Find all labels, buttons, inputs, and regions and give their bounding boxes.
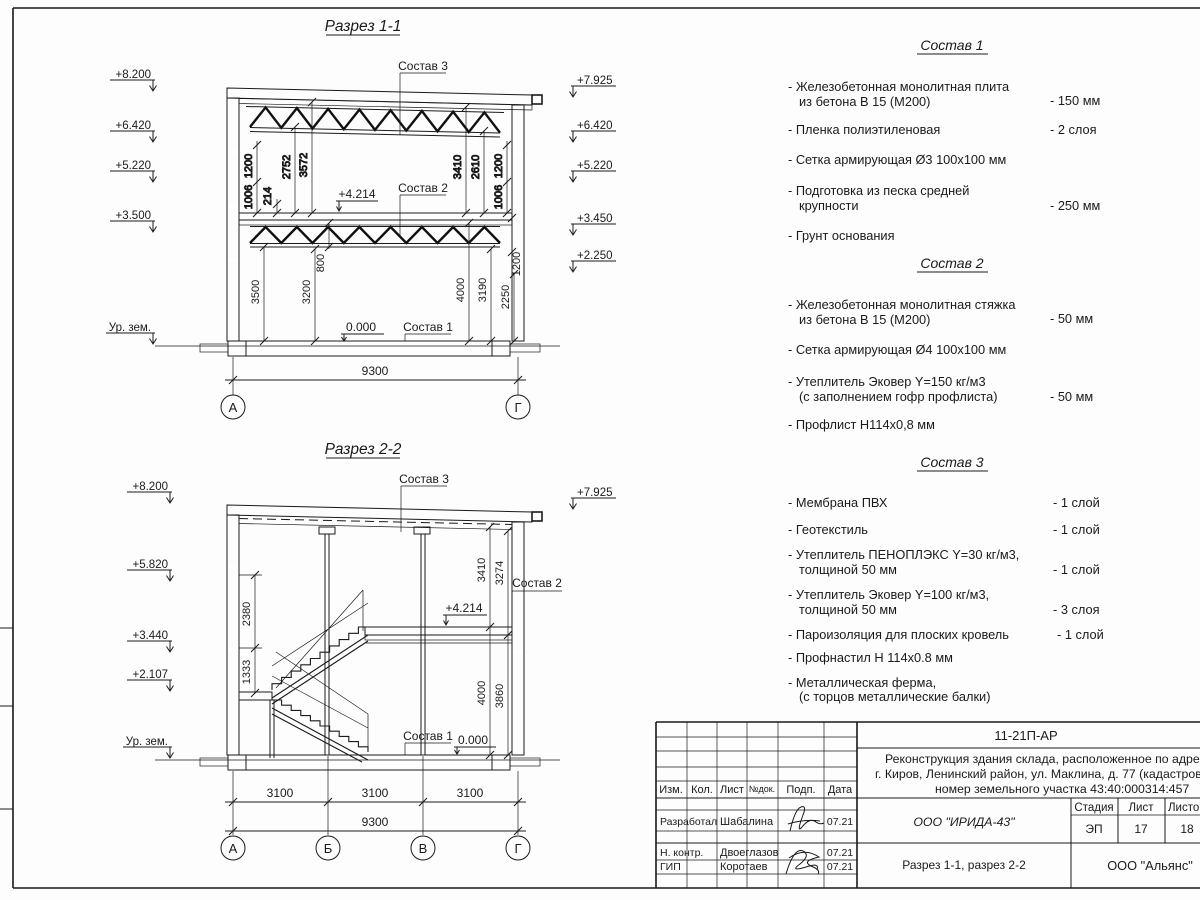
elevation-label: +3.500 <box>116 210 152 222</box>
elevation-marks-right: +7.925 <box>570 487 617 509</box>
signature-date: 07.21 <box>827 816 853 828</box>
callout-label: Состав 3 <box>399 472 449 486</box>
doc-title: Разрез 1-1, разрез 2-2 <box>902 858 1026 872</box>
list-item: (с торцов металлические балки) <box>799 689 990 704</box>
signature-role: Н. контр. <box>660 847 703 859</box>
composition-callouts: Состав 3 Состав 2 Состав 1 +4.214 0.000 <box>399 472 562 755</box>
composition-list-1: Состав 1 - Железобетонная монолитная пли… <box>788 37 1100 243</box>
signature-role: Разработал <box>660 816 717 828</box>
dim-label: 2250 <box>500 285 512 309</box>
elevation-marks-right: +7.925 +6.420 +5.220 +3.450 +2.250 <box>570 75 617 272</box>
columns <box>270 534 425 758</box>
level-label: 0.000 <box>346 320 376 334</box>
col-header: Кол. <box>691 784 713 796</box>
project-line: Реконструкция здания склада, расположенн… <box>885 752 1200 766</box>
list-item: - Утеплитель Эковер Y=150 кг/м3 <box>788 374 986 389</box>
list-item: - Профнастил Н 114х0.8 мм <box>788 650 953 665</box>
list-value: - 2 слоя <box>1050 122 1097 137</box>
dim-label: 3274 <box>494 561 506 585</box>
elevation-label: +3.450 <box>577 213 613 225</box>
dims-left: 2380 1333 <box>239 571 262 697</box>
dim-label: 3410 <box>476 558 488 582</box>
ground-level-label: Ур. зем. <box>109 322 151 334</box>
list-item: - Сетка армирующая Ø3 100х100 мм <box>788 152 1006 167</box>
col-header: №док. <box>749 784 775 794</box>
elevation-label: +2.107 <box>133 669 169 681</box>
list-item: - Пленка полиэтиленовая <box>788 122 940 137</box>
project-line: г. Киров, Ленинский район, ул. Маклина, … <box>875 767 1200 781</box>
list-title: Состав 1 <box>920 37 983 53</box>
list-item: из бетона В 15 (М200) <box>799 312 930 327</box>
callout-label: Состав 2 <box>398 181 448 195</box>
elevation-label: +6.420 <box>116 120 152 132</box>
ground-level-label: Ур. зем. <box>126 736 168 748</box>
col-header: Лист <box>720 784 744 796</box>
axis-dimension: 3100 3100 3100 9300 А Б В Г <box>221 756 530 860</box>
doc-code: 11-21П-АР <box>994 728 1057 743</box>
level-label: +4.214 <box>338 187 375 201</box>
roof-structure <box>227 505 542 534</box>
dim-label: 3500 <box>250 280 262 304</box>
list-value: - 1 слой <box>1057 627 1104 642</box>
blueprint-canvas: Разрез 1-1 +8.200 +6 <box>0 0 1200 900</box>
list-value: - 250 мм <box>1050 198 1100 213</box>
title-block: Изм. Кол. Лист №док. Подп. Дата Разработ… <box>656 722 1200 888</box>
list-value: - 50 мм <box>1050 389 1093 404</box>
elevation-label: +8.200 <box>133 481 169 493</box>
company-name: ООО "Альянс" <box>1107 858 1193 873</box>
list-item: - Пароизоляция для плоских кровель <box>788 627 1009 642</box>
dims-right: 3410 3274 4000 3860 <box>476 523 512 759</box>
elevation-label: +5.820 <box>133 559 169 571</box>
list-item: - Железобетонная монолитная стяжка <box>788 297 1016 312</box>
callout-label: Состав 1 <box>403 320 453 334</box>
section-2-2: Разрез 2-2 <box>123 441 616 860</box>
dim-label: 3100 <box>362 786 389 800</box>
dim-label: 3190 <box>477 278 489 302</box>
drawing-sheet: Разрез 1-1 +8.200 +6 <box>0 0 1200 900</box>
list-value: - 150 мм <box>1050 93 1100 108</box>
fold-marks <box>0 628 13 809</box>
signature-date: 07.21 <box>827 861 853 873</box>
dim-total: 9300 <box>362 815 389 829</box>
dim-label: 3200 <box>301 280 313 304</box>
signature-name: Шабалина <box>720 816 774 828</box>
staircase <box>239 590 368 762</box>
dim-label: 214 <box>262 187 274 205</box>
dim-label: 1006 <box>243 185 255 209</box>
list-value: - 1 слой <box>1053 495 1100 510</box>
list-item: - Металлическая ферма, <box>788 675 936 690</box>
floor-structure <box>239 213 512 247</box>
col-header: Изм. <box>659 784 683 796</box>
list-item: крупности <box>799 198 859 213</box>
elevation-label: +3.440 <box>133 630 169 642</box>
dim-total: 9300 <box>362 364 389 378</box>
callout-label: Состав 2 <box>512 576 562 590</box>
dim-label: 1200 <box>493 154 505 178</box>
axis-label: Г <box>514 400 521 415</box>
dim-label: 3100 <box>267 786 294 800</box>
elevation-label: +2.250 <box>577 250 613 262</box>
list-item: - Сетка армирующая Ø4 100х100 мм <box>788 342 1006 357</box>
sheets-value: 18 <box>1180 822 1194 836</box>
list-item: из бетона В 15 (М200) <box>799 94 930 109</box>
list-item: - Профлист Н114х0,8 мм <box>788 417 935 432</box>
section-title: Разрез 2-2 <box>325 441 402 458</box>
dim-label: 4000 <box>455 278 467 302</box>
callout-label: Состав 1 <box>403 729 453 743</box>
dim-label: 2752 <box>281 155 293 179</box>
dim-label: 1006 <box>493 185 505 209</box>
signature-date: 07.21 <box>827 847 853 859</box>
list-value: - 1 слой <box>1053 562 1100 577</box>
elevation-label: +6.420 <box>577 120 613 132</box>
col-header: Подп. <box>786 784 815 796</box>
signature-role: ГИП <box>660 861 681 873</box>
elevation-marks-left: +8.200 +5.820 +3.440 +2.107 Ур. зем. <box>123 481 174 758</box>
axis-dimension: 9300 А Г <box>221 357 530 419</box>
signature-scribble <box>786 850 819 874</box>
sheets-header: Листов <box>1168 802 1200 814</box>
list-item: толщиной 50 мм <box>799 562 897 577</box>
list-item: - Мембрана ПВХ <box>788 495 888 510</box>
list-item: толщиной 50 мм <box>799 602 897 617</box>
list-item: - Грунт основания <box>788 228 895 243</box>
list-item: - Подготовка из песка средней <box>788 183 969 198</box>
axis-label: Б <box>324 841 333 856</box>
col-header: Дата <box>828 784 853 796</box>
designer-org: ООО "ИРИДА-43" <box>913 815 1015 829</box>
dim-label: 1333 <box>241 660 253 684</box>
list-value: - 3 слоя <box>1053 602 1100 617</box>
elevation-label: +7.925 <box>577 487 613 499</box>
elevation-label: +7.925 <box>577 75 613 87</box>
section-title: Разрез 1-1 <box>325 18 402 35</box>
roof-structure <box>227 88 542 137</box>
level-label: +4.214 <box>445 601 482 615</box>
elevation-label: +5.220 <box>116 160 152 172</box>
axis-label: А <box>229 400 238 415</box>
elevation-label: +8.200 <box>116 69 152 81</box>
dim-label: 3860 <box>494 684 506 708</box>
dim-label: 4000 <box>476 681 488 705</box>
list-value: - 50 мм <box>1050 311 1093 326</box>
list-item: - Железобетонная монолитная плита <box>788 79 1010 94</box>
list-title: Состав 3 <box>920 454 983 470</box>
list-item: (с заполнением гофр профлиста) <box>799 389 998 404</box>
dim-label: 2610 <box>470 155 482 179</box>
list-item: - Утеплитель ПЕНОПЛЭКС Y=30 кг/м3, <box>788 547 1019 562</box>
dim-label: 1200 <box>511 252 523 276</box>
dim-label: 3572 <box>298 153 310 177</box>
section-1-1: Разрез 1-1 +8.200 +6 <box>106 18 616 419</box>
sheet-header: Лист <box>1129 802 1155 814</box>
dim-label: 2380 <box>241 602 253 626</box>
composition-list-3: Состав 3 - Мембрана ПВХ - 1 слой - Геоте… <box>788 454 1104 704</box>
dim-label: 1200 <box>243 154 255 178</box>
sheet-value: 17 <box>1134 822 1148 836</box>
callout-label: Состав 3 <box>398 59 448 73</box>
list-value: - 1 слой <box>1053 522 1100 537</box>
signature-name: Двоеглазов <box>720 847 779 859</box>
level-label: 0.000 <box>458 733 488 747</box>
dims-upper: 1200 1006 214 2752 3572 3410 2610 1200 1… <box>243 98 511 217</box>
dim-label: 800 <box>315 254 327 272</box>
elevation-marks-left: +8.200 +6.420 +5.220 +3.500 Ур. зем. <box>106 69 157 344</box>
composition-list-2: Состав 2 - Железобетонная монолитная стя… <box>788 255 1093 432</box>
axis-label: Г <box>514 841 521 856</box>
axis-label: А <box>229 841 238 856</box>
dim-label: 3410 <box>452 155 464 179</box>
list-item: - Геотекстиль <box>788 522 868 537</box>
elevation-label: +5.220 <box>577 160 613 172</box>
dim-label: 3100 <box>457 786 484 800</box>
signature-name: Коротаев <box>720 861 768 873</box>
axis-label: В <box>419 841 428 856</box>
project-line: номер земельного участка 43:40:000314:45… <box>935 782 1189 796</box>
stage-value: ЭП <box>1085 822 1102 836</box>
stage-header: Стадия <box>1074 802 1113 814</box>
list-item: - Утеплитель Эковер Y=100 кг/м3, <box>788 587 989 602</box>
list-title: Состав 2 <box>920 255 983 271</box>
